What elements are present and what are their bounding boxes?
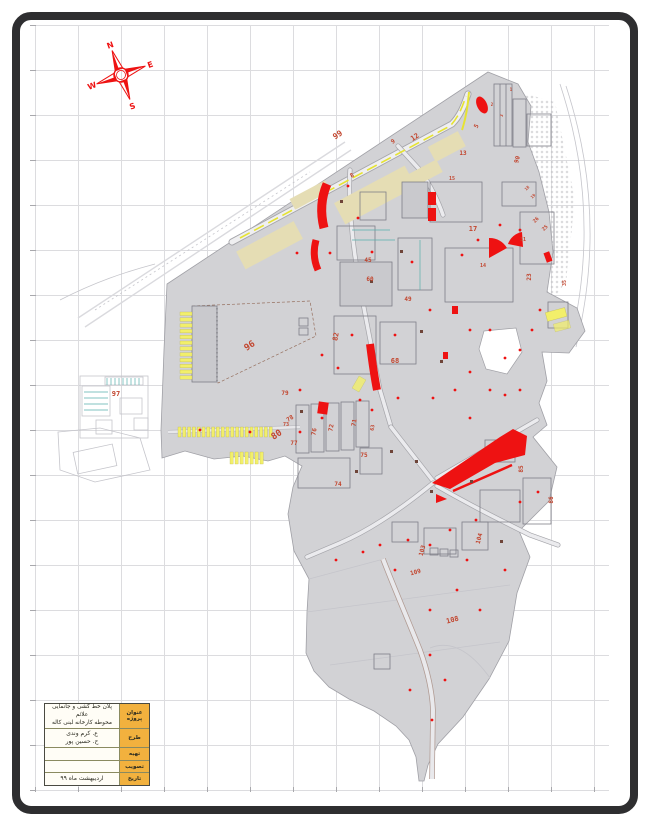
parcel-label-86: 86 xyxy=(548,496,555,504)
parcel-label-82: 82 xyxy=(331,332,340,342)
titleblock-value-project: پلان خط کشی و جانمایی علائم محوطه کارخان… xyxy=(45,704,119,728)
titleblock-label-project: عنوان پروژه xyxy=(119,704,149,728)
titleblock-value-design: ع. کرم وندی ح. حسین پور xyxy=(45,729,119,747)
titleblock-label-prepared: تهیه xyxy=(119,748,149,760)
titleblock-value-approved xyxy=(45,761,119,773)
title-block-row: تهیه xyxy=(45,748,149,761)
parcel-label-74: 74 xyxy=(334,481,342,488)
parcel-label-75: 75 xyxy=(360,452,368,459)
parcel-label-73: 73 xyxy=(283,422,289,428)
title-block: عنوان پروژه پلان خط کشی و جانمایی علائم … xyxy=(44,703,150,786)
parcel-label-85: 85 xyxy=(518,465,525,473)
titleblock-label-approved: تصویب xyxy=(119,761,149,773)
drawing-sheet: 9991258139012317152526312335141819456049… xyxy=(0,0,650,826)
compass-east-label: E xyxy=(146,60,154,70)
parcel-label-77: 77 xyxy=(290,440,298,447)
titleblock-label-date: تاریخ xyxy=(119,773,149,785)
parcel-label-23: 23 xyxy=(526,273,533,281)
compass-north-label: N xyxy=(106,40,115,51)
titleblock-value-prepared xyxy=(45,748,119,760)
compass-south-label: S xyxy=(128,101,137,112)
compass-rose: N E S W xyxy=(75,30,165,123)
parcel-label-17: 17 xyxy=(469,225,477,233)
titleblock-value-date: اردیبهشت ماه ۹۹ xyxy=(45,773,119,785)
title-block-row: تاریخ اردیبهشت ماه ۹۹ xyxy=(45,773,149,785)
title-block-row: عنوان پروژه پلان خط کشی و جانمایی علائم … xyxy=(45,704,149,729)
parcel-label-97: 97 xyxy=(112,390,120,398)
parcel-label-49: 49 xyxy=(404,296,412,303)
title-block-row: تصویب xyxy=(45,761,149,774)
parcel-label-99: 99 xyxy=(331,128,344,141)
titleblock-label-design: طرح xyxy=(119,729,149,747)
parcel-label-14: 14 xyxy=(480,263,486,269)
parcel-label-31: 31 xyxy=(520,237,526,243)
parcel-label-13: 13 xyxy=(459,150,467,157)
parcel-label-68: 68 xyxy=(391,357,399,365)
parcel-label-35: 35 xyxy=(562,280,568,286)
compass-west-label: W xyxy=(86,80,98,92)
title-block-row: طرح ع. کرم وندی ح. حسین پور xyxy=(45,729,149,748)
parcel-label-15: 15 xyxy=(449,176,455,182)
parcel-label-63: 63 xyxy=(370,424,377,431)
parcel-label-60: 60 xyxy=(366,276,374,283)
parcel-label-79: 79 xyxy=(281,390,289,397)
parcel-label-45: 45 xyxy=(364,257,372,264)
